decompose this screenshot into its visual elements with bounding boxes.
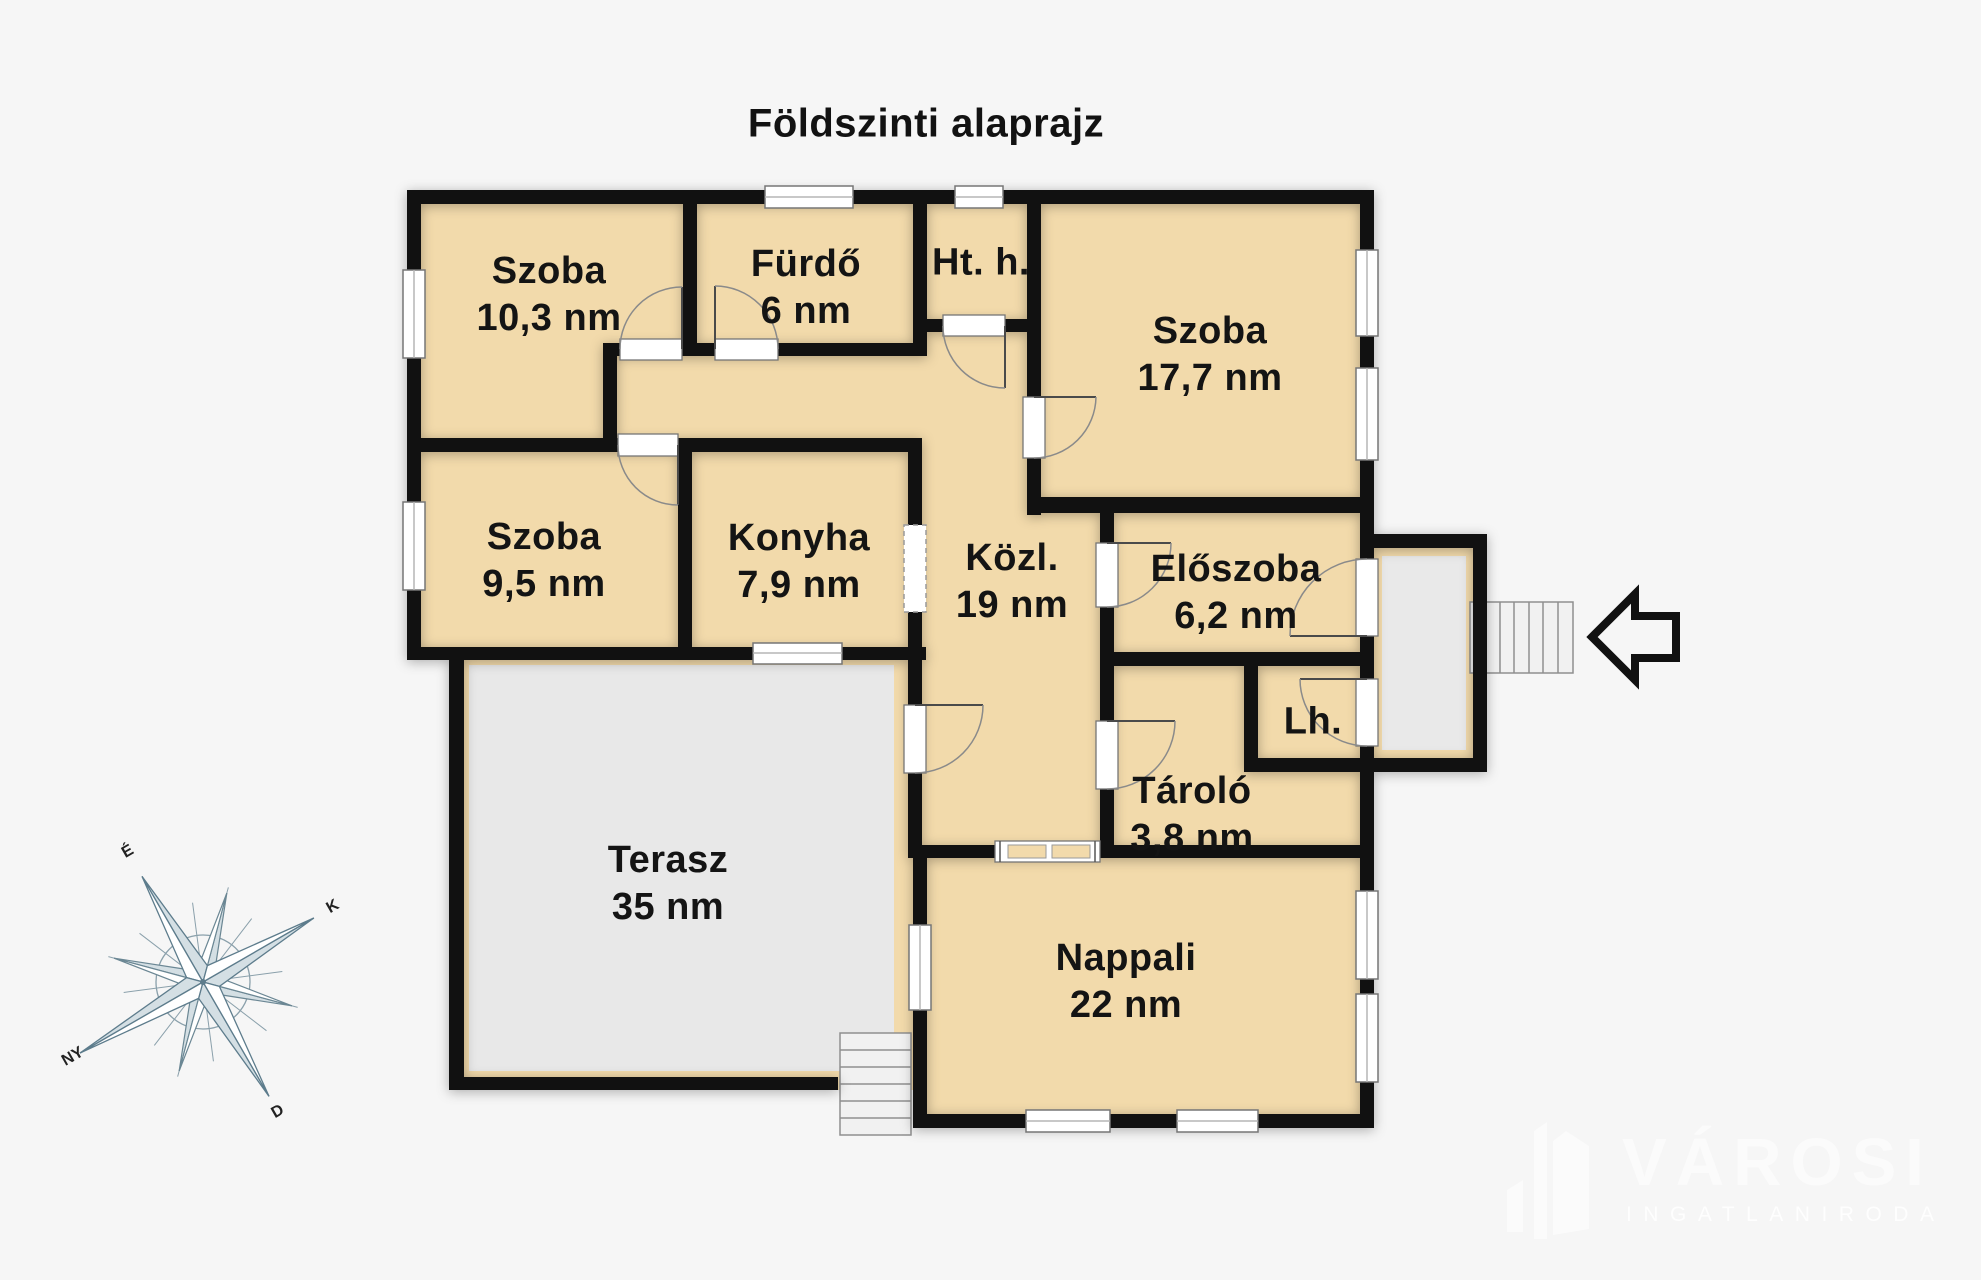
room-label-konyha: Konyha 7,9 nm [728, 515, 870, 609]
room-name: Szoba [1137, 308, 1282, 355]
brand-tagline: INGATLANIRODA [1626, 1203, 1945, 1227]
room-label-eloszoba: Előszoba 6,2 nm [1151, 546, 1322, 640]
terrace-stairs [840, 1033, 911, 1135]
stairwell-floor [1382, 556, 1466, 750]
room-name: Nappali [1056, 935, 1197, 982]
page-title: Földszinti alaprajz [748, 102, 1104, 147]
compass-rose-icon [19, 812, 380, 1167]
room-name: Terasz [608, 837, 729, 884]
room-label-nappali: Nappali 22 nm [1056, 935, 1197, 1029]
room-label-furdo: Fürdő 6 nm [751, 241, 861, 335]
kitchen-hatch [904, 525, 926, 612]
room-name: Tároló [1130, 768, 1253, 815]
room-name: Közl. [956, 535, 1068, 582]
room-area: 17,7 nm [1137, 355, 1282, 402]
room-label-terasz: Terasz 35 nm [608, 837, 729, 931]
room-label-tarolo: Tároló 3,8 nm [1130, 768, 1253, 862]
room-area: 19 nm [956, 582, 1068, 629]
room-name: Szoba [482, 514, 605, 561]
floorplan-page: Földszinti alaprajz Szoba 10,3 nm Fürdő … [0, 0, 1981, 1280]
room-label-lepcsohaz: Lh. [1284, 699, 1342, 746]
room-name: Lh. [1284, 699, 1342, 746]
room-name: Konyha [728, 515, 870, 562]
brand-wordmark: VÁROSI [1622, 1124, 1933, 1201]
room-area: 35 nm [608, 884, 729, 931]
room-name: Ht. h. [932, 240, 1030, 287]
room-area: 22 nm [1056, 982, 1197, 1029]
room-label-szoba-3: Szoba 9,5 nm [482, 514, 605, 608]
brand-building-icon [1507, 1122, 1589, 1239]
room-area: 6 nm [751, 288, 861, 335]
room-label-kozlekedo: Közl. 19 nm [956, 535, 1068, 629]
floorplan-drawing [0, 0, 1981, 1280]
entrance-arrow-icon [1592, 594, 1676, 680]
room-area: 7,9 nm [728, 562, 870, 609]
room-area: 9,5 nm [482, 561, 605, 608]
room-label-szoba-1: Szoba 10,3 nm [476, 248, 621, 342]
room-area: 6,2 nm [1151, 593, 1322, 640]
room-name: Fürdő [751, 241, 861, 288]
room-name: Szoba [476, 248, 621, 295]
room-label-haztartasi: Ht. h. [932, 240, 1030, 287]
room-label-szoba-2: Szoba 17,7 nm [1137, 308, 1282, 402]
room-name: Előszoba [1151, 546, 1322, 593]
room-area: 10,3 nm [476, 295, 621, 342]
glazed-door [995, 841, 1100, 862]
room-area: 3,8 nm [1130, 815, 1253, 862]
